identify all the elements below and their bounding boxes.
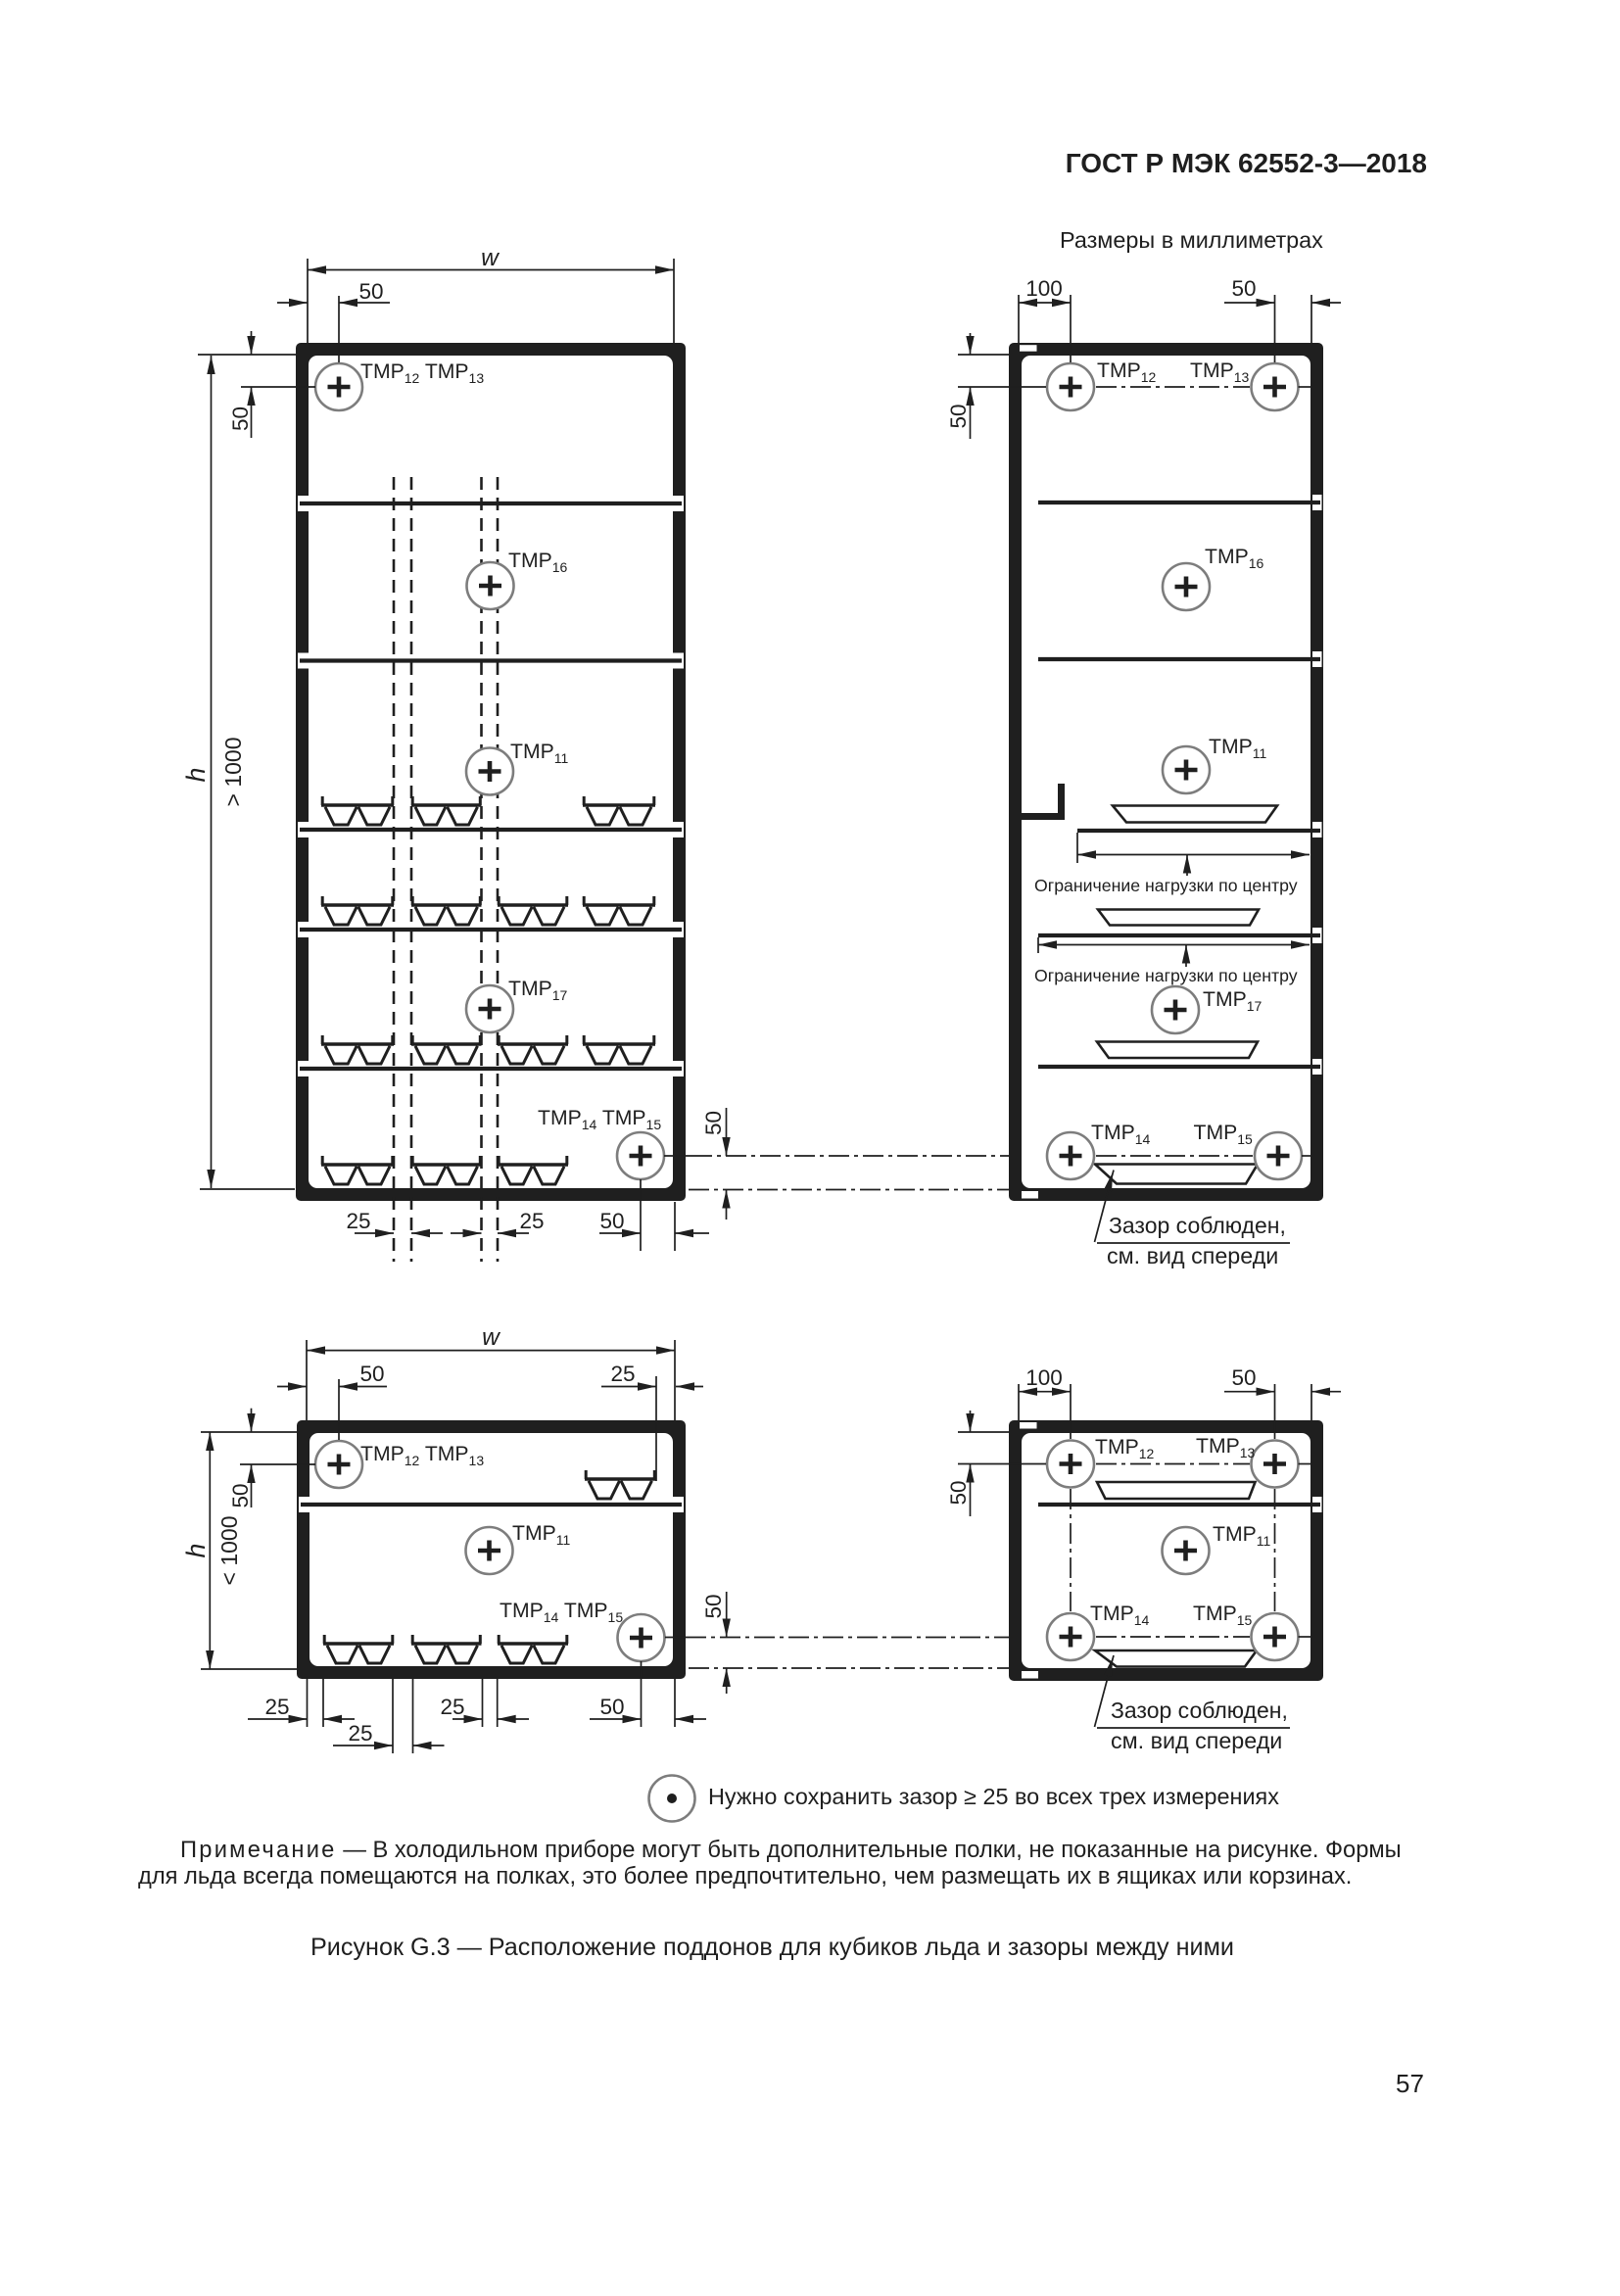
svg-text:TMP12 TMP13: TMP12 TMP13 bbox=[360, 1443, 484, 1468]
svg-text:Примечание — В холодильном при: Примечание — В холодильном приборе могут… bbox=[180, 1838, 1402, 1863]
svg-text:> 1000: > 1000 bbox=[220, 738, 246, 807]
svg-text:TMP14 TMP15: TMP14 TMP15 bbox=[500, 1600, 623, 1625]
svg-text:w: w bbox=[481, 245, 500, 271]
svg-text:50: 50 bbox=[701, 1594, 726, 1618]
svg-text:Зазор соблюден,: Зазор соблюден, bbox=[1111, 1698, 1288, 1723]
svg-text:57: 57 bbox=[1396, 2069, 1424, 2098]
svg-text:Ограничение нагрузки по центру: Ограничение нагрузки по центру bbox=[1034, 876, 1298, 895]
svg-text:50: 50 bbox=[599, 1695, 624, 1719]
svg-text:25: 25 bbox=[348, 1721, 372, 1746]
svg-text:50: 50 bbox=[1231, 1365, 1256, 1390]
svg-text:h: h bbox=[181, 768, 211, 783]
svg-text:100: 100 bbox=[1025, 276, 1063, 301]
svg-text:25: 25 bbox=[519, 1209, 544, 1233]
svg-text:TMP14 TMP15: TMP14 TMP15 bbox=[538, 1107, 661, 1132]
svg-text:Нужно сохранить зазор ≥ 25 во: Нужно сохранить зазор ≥ 25 во всех трех … bbox=[708, 1784, 1279, 1809]
svg-text:25: 25 bbox=[610, 1362, 635, 1386]
svg-text:25: 25 bbox=[440, 1695, 464, 1719]
svg-text:< 1000: < 1000 bbox=[216, 1516, 242, 1586]
svg-text:см. вид спереди: см. вид спереди bbox=[1111, 1728, 1282, 1753]
svg-text:25: 25 bbox=[346, 1209, 370, 1233]
svg-text:50: 50 bbox=[1231, 276, 1256, 301]
svg-text:50: 50 bbox=[946, 1480, 971, 1505]
svg-text:Ограничение нагрузки по центру: Ограничение нагрузки по центру bbox=[1034, 966, 1298, 985]
svg-text:50: 50 bbox=[228, 1483, 253, 1507]
svg-text:50: 50 bbox=[946, 404, 971, 428]
svg-text:50: 50 bbox=[599, 1209, 624, 1233]
svg-text:100: 100 bbox=[1025, 1365, 1063, 1390]
svg-text:w: w bbox=[482, 1324, 501, 1351]
svg-text:h: h bbox=[181, 1544, 211, 1558]
svg-text:Рисунок G.3 — Расположение под: Рисунок G.3 — Расположение поддонов для … bbox=[310, 1934, 1234, 1961]
svg-text:25: 25 bbox=[264, 1695, 289, 1719]
svg-text:50: 50 bbox=[228, 407, 253, 431]
svg-text:ГОСТ Р МЭК 62552-3—2018: ГОСТ Р МЭК 62552-3—2018 bbox=[1066, 148, 1427, 178]
svg-text:TMP12 TMP13: TMP12 TMP13 bbox=[360, 360, 484, 386]
svg-text:50: 50 bbox=[358, 279, 383, 304]
svg-text:50: 50 bbox=[701, 1111, 726, 1135]
svg-text:Размеры в миллиметрах: Размеры в миллиметрах bbox=[1060, 227, 1323, 253]
svg-text:для льда всегда помещаются на: для льда всегда помещаются на полках, эт… bbox=[138, 1864, 1352, 1889]
svg-text:50: 50 bbox=[359, 1362, 384, 1386]
svg-text:Зазор соблюден,: Зазор соблюден, bbox=[1109, 1213, 1286, 1238]
svg-text:см. вид спереди: см. вид спереди bbox=[1107, 1243, 1278, 1268]
